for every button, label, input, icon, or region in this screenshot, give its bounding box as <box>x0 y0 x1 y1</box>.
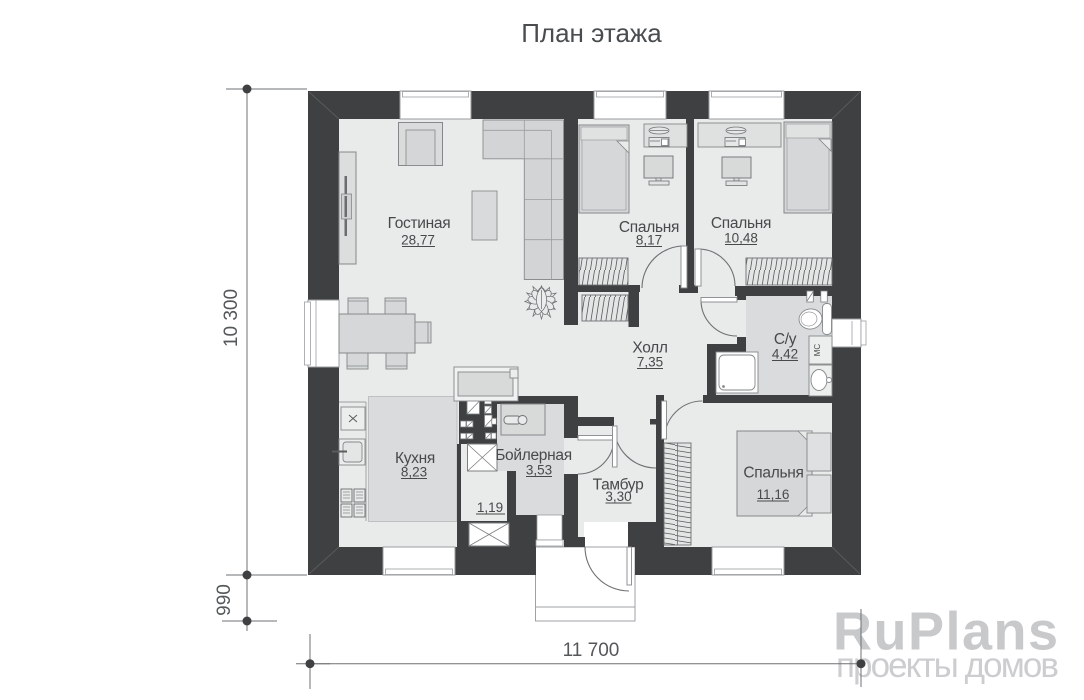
svg-text:990: 990 <box>214 584 235 616</box>
svg-text:8,23: 8,23 <box>401 465 427 480</box>
svg-text:8,17: 8,17 <box>636 233 662 248</box>
svg-text:10,48: 10,48 <box>724 231 758 246</box>
svg-text:Спальня: Спальня <box>743 465 803 482</box>
svg-text:28,77: 28,77 <box>401 233 435 248</box>
svg-text:7,35: 7,35 <box>637 355 663 370</box>
svg-text:10 300: 10 300 <box>221 289 242 347</box>
svg-text:4,42: 4,42 <box>772 347 798 362</box>
svg-text:С/у: С/у <box>774 331 797 348</box>
svg-text:3,53: 3,53 <box>526 463 552 478</box>
svg-text:Гостиная: Гостиная <box>388 215 451 232</box>
svg-text:проекты домов: проекты домов <box>836 646 1059 685</box>
svg-text:МС: МС <box>813 344 822 357</box>
svg-text:11,16: 11,16 <box>757 487 790 502</box>
svg-text:1,19: 1,19 <box>477 500 503 515</box>
svg-text:Спальня: Спальня <box>711 215 771 232</box>
svg-text:Бойлерная: Бойлерная <box>495 447 572 464</box>
svg-text:11 700: 11 700 <box>563 640 620 661</box>
svg-text:3,30: 3,30 <box>605 489 631 504</box>
svg-text:План этажа: План этажа <box>521 18 662 48</box>
